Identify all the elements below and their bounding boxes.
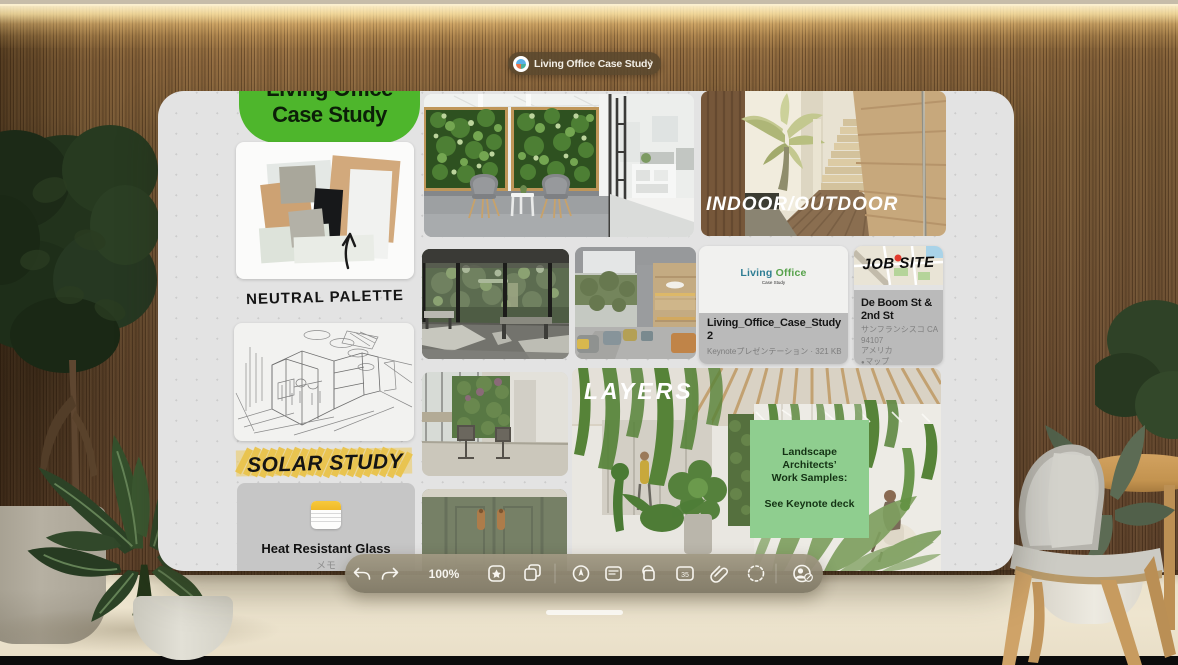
svg-text:SOLAR STUDY: SOLAR STUDY	[247, 450, 405, 477]
svg-text:35: 35	[681, 572, 689, 579]
svg-text:100%: 100%	[429, 567, 460, 581]
